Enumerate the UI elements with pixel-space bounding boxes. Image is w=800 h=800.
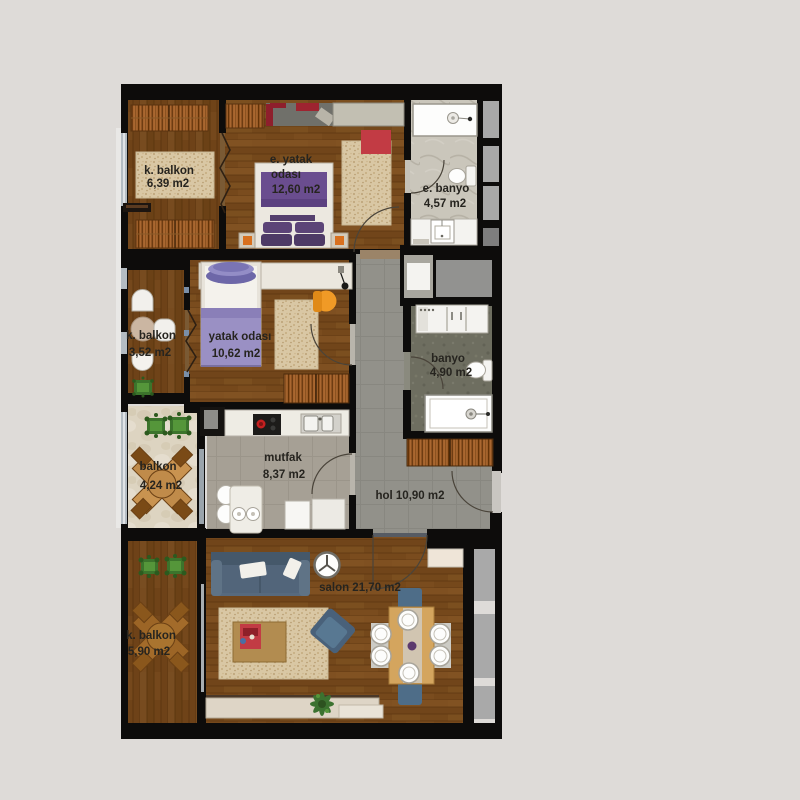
svg-text:e. yatak: e. yatak — [270, 154, 313, 166]
svg-text:8,37 m2: 8,37 m2 — [263, 469, 305, 481]
svg-text:hol 10,90 m2: hol 10,90 m2 — [375, 490, 444, 502]
svg-text:12,60 m2: 12,60 m2 — [272, 184, 321, 196]
svg-text:banyo: banyo — [431, 353, 465, 365]
svg-text:k. balkon: k. balkon — [126, 330, 176, 342]
svg-text:yatak odası: yatak odası — [209, 331, 272, 343]
svg-text:odası: odası — [271, 169, 301, 181]
svg-text:e. banyo: e. banyo — [423, 183, 470, 195]
svg-text:k. balkon: k. balkon — [144, 165, 194, 177]
svg-text:6,39 m2: 6,39 m2 — [147, 178, 189, 190]
svg-text:balkon: balkon — [139, 461, 176, 473]
svg-text:mutfak: mutfak — [264, 452, 302, 464]
svg-text:k. balkon: k. balkon — [126, 630, 176, 642]
svg-text:10,62 m2: 10,62 m2 — [212, 348, 261, 360]
svg-text:4,57 m2: 4,57 m2 — [424, 198, 466, 210]
svg-text:4,90 m2: 4,90 m2 — [430, 367, 472, 379]
svg-text:3,52 m2: 3,52 m2 — [129, 347, 171, 359]
svg-text:5,90 m2: 5,90 m2 — [128, 646, 170, 658]
svg-text:4,24 m2: 4,24 m2 — [140, 480, 182, 492]
svg-text:salon 21,70 m2: salon 21,70 m2 — [319, 582, 401, 594]
